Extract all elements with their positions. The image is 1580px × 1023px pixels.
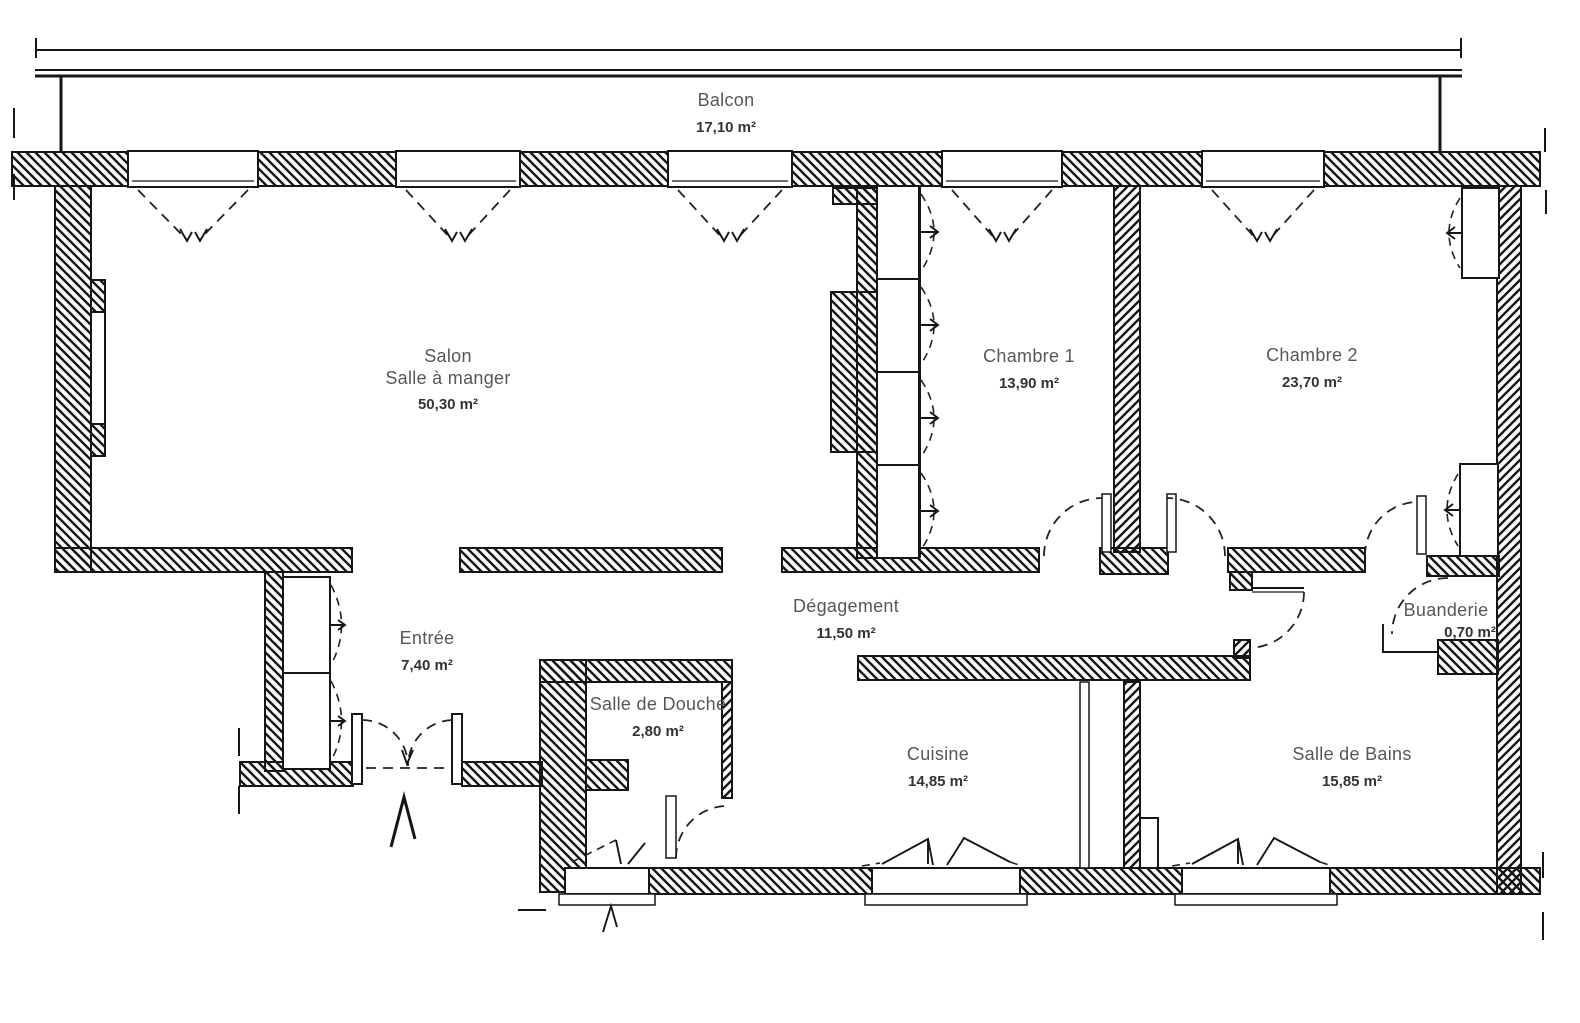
room-label-chambre1: Chambre 1 13,90 m² bbox=[983, 346, 1075, 392]
room-area: 7,40 m² bbox=[400, 657, 455, 674]
hallway-lower-wall bbox=[858, 572, 1304, 680]
room-name: Chambre 1 bbox=[983, 346, 1075, 368]
vestibule-door-arc bbox=[1365, 502, 1415, 556]
room-area: 11,50 m² bbox=[793, 625, 899, 642]
entree-closet bbox=[283, 577, 345, 769]
room-name: Cuisine bbox=[907, 744, 969, 766]
room-area: 2,80 m² bbox=[590, 723, 727, 740]
entrance-double-door bbox=[352, 714, 462, 784]
room-area: 17,10 m² bbox=[696, 119, 756, 136]
room-area: 14,85 m² bbox=[907, 773, 969, 790]
boundary-ticks bbox=[14, 108, 1546, 940]
room-name: Salon bbox=[385, 346, 510, 368]
secondary-arrow bbox=[603, 906, 617, 932]
room-name-line2: Salle à manger bbox=[385, 368, 510, 390]
entrance-arrow bbox=[391, 797, 415, 847]
floor-plan: Balcon 17,10 m² Salon Salle à manger 50,… bbox=[0, 0, 1580, 1023]
room-label-entree: Entrée 7,40 m² bbox=[400, 628, 455, 674]
exterior-wall-bottom bbox=[565, 868, 1540, 894]
room-label-cuisine: Cuisine 14,85 m² bbox=[907, 744, 969, 790]
room-area: 15,85 m² bbox=[1292, 773, 1411, 790]
room-area: 13,90 m² bbox=[983, 375, 1075, 392]
room-name: Chambre 2 bbox=[1266, 345, 1358, 367]
bathroom-door-arc bbox=[1250, 592, 1304, 648]
kitchen-partitions bbox=[1080, 682, 1158, 868]
right-wall-niches bbox=[1445, 188, 1499, 556]
room-label-salle-de-bains: Salle de Bains 15,85 m² bbox=[1292, 744, 1411, 790]
room-area: 0,70 m² bbox=[1428, 624, 1513, 641]
room-label-chambre2: Chambre 2 23,70 m² bbox=[1266, 345, 1358, 391]
room-name: Balcon bbox=[696, 90, 756, 112]
room-name: Entrée bbox=[400, 628, 455, 650]
room-name: Salle de Douche bbox=[590, 694, 727, 716]
room-area: 50,30 m² bbox=[385, 396, 510, 413]
room-area: 23,70 m² bbox=[1266, 374, 1358, 391]
room-name: Salle de Bains bbox=[1292, 744, 1411, 766]
room-name: Buanderie bbox=[1404, 600, 1489, 622]
wall-chambre1-chambre2 bbox=[1102, 186, 1176, 552]
radiator bbox=[91, 312, 105, 424]
room-label-salon: Salon Salle à manger 50,30 m² bbox=[385, 346, 510, 413]
room-label-degagement: Dégagement 11,50 m² bbox=[793, 596, 899, 642]
door-chambre1-arc bbox=[1044, 498, 1102, 556]
room-label-buanderie: Buanderie 0,70 m² bbox=[1404, 600, 1489, 641]
exterior-wall-right bbox=[1497, 186, 1521, 894]
room-label-balcon: Balcon 17,10 m² bbox=[696, 90, 756, 136]
shower-door-arc bbox=[676, 806, 724, 858]
closet-salon-chambre1 bbox=[831, 186, 938, 558]
room-name: Dégagement bbox=[793, 596, 899, 618]
room-label-salle-de-douche: Salle de Douche 2,80 m² bbox=[590, 694, 727, 740]
floor-plan-drawing bbox=[0, 0, 1580, 1023]
